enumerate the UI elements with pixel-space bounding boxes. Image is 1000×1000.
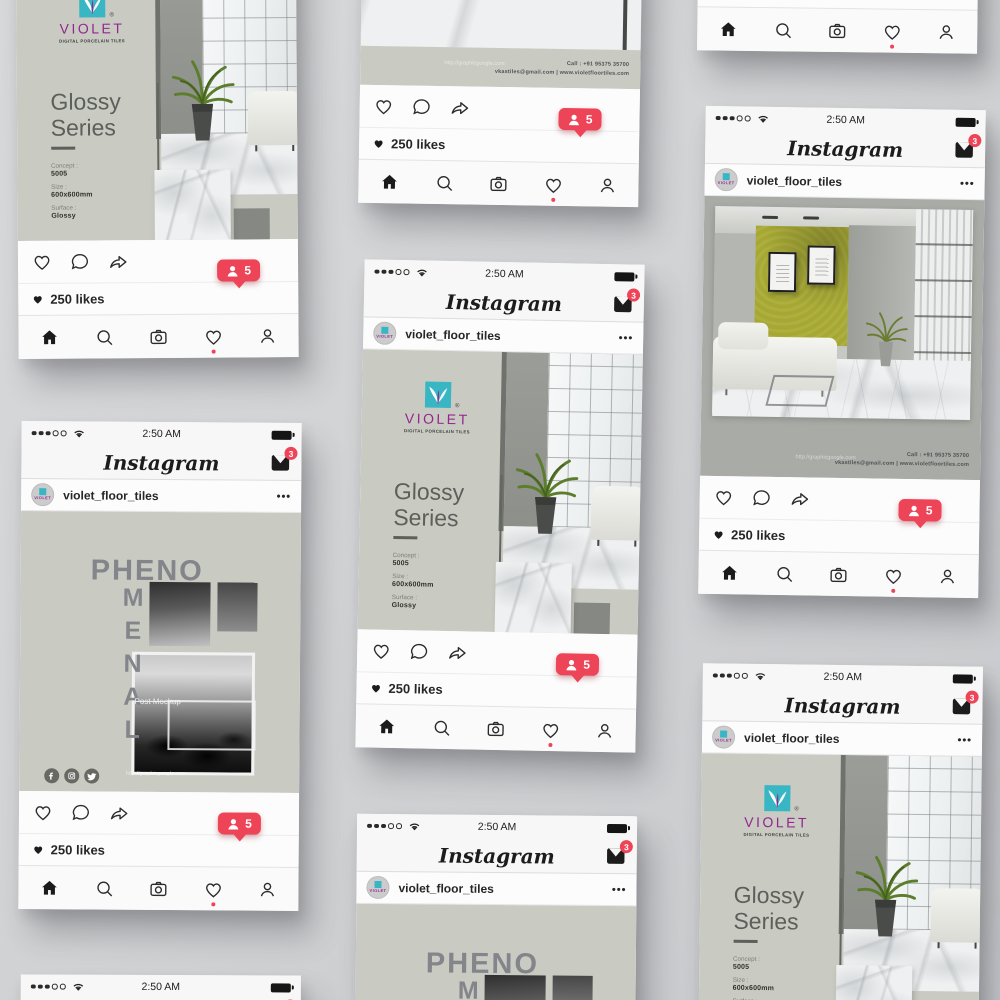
green-accent-wall <box>755 225 850 346</box>
inbox-icon[interactable]: 3 <box>605 845 627 867</box>
follower-icon <box>227 817 240 830</box>
brand-name: VIOLET <box>60 20 125 36</box>
spec-size: Size :600x600mm <box>51 183 93 198</box>
product-specs: Concept :5005 Size :600x600mm Surface :G… <box>732 955 774 1000</box>
profile-icon[interactable] <box>256 325 278 347</box>
username[interactable]: violet_floor_tiles <box>747 173 843 188</box>
status-time: 2:50 AM <box>823 671 862 683</box>
phenomenal-word-top: PHENO <box>426 948 539 982</box>
camera-icon[interactable] <box>487 172 509 194</box>
instagram-icon[interactable] <box>64 768 79 783</box>
violet-logo: ® VIOLET DIGITAL PORCELAIN TILES <box>387 381 489 435</box>
notification-count: 5 <box>583 658 590 672</box>
violet-logo-mark: ® <box>79 0 105 17</box>
activity-tab[interactable] <box>542 173 564 195</box>
likes-count[interactable]: 250 likes <box>388 681 442 697</box>
title-underline <box>733 940 757 943</box>
search-icon[interactable] <box>93 326 115 348</box>
heart-icon <box>881 20 903 42</box>
sofa <box>248 91 298 145</box>
liked-heart-icon <box>369 682 382 695</box>
follower-icon <box>226 264 239 277</box>
spec-surface: Surface :Glossy <box>392 594 434 610</box>
series-title: GlossySeries <box>733 882 804 934</box>
username[interactable]: violet_floor_tiles <box>405 327 501 343</box>
battery-icon <box>953 674 973 683</box>
liked-heart-icon <box>31 293 44 306</box>
nav-bar <box>18 313 298 359</box>
post-image-phenomenal[interactable]: PHENO MENAL Post Mockup http://graphicgo… <box>19 511 301 793</box>
comment-button-icon[interactable] <box>751 487 773 509</box>
profile-icon[interactable] <box>596 174 618 196</box>
activity-tab[interactable] <box>881 20 903 42</box>
signal-strength-icon <box>374 267 428 278</box>
contact-links: vkastiles@gmail.com | www.violetfloortil… <box>495 68 629 79</box>
action-bar: 5 <box>699 476 980 522</box>
window-blinds <box>914 209 973 369</box>
inbox-badge: 3 <box>620 840 633 853</box>
marble-photo <box>361 0 645 50</box>
profile-row: VIOLET violet_floor_tiles ••• <box>363 317 644 354</box>
signal-strength-icon <box>32 428 86 438</box>
action-bar: 5 <box>18 239 298 283</box>
username[interactable]: violet_floor_tiles <box>398 881 493 896</box>
wall-frame <box>768 252 796 292</box>
plant <box>860 296 913 377</box>
violet-logo-mark: ® <box>424 381 450 407</box>
status-time: 2:50 AM <box>485 268 524 281</box>
activity-dot <box>211 902 215 906</box>
battery-icon <box>956 117 976 126</box>
like-button-icon[interactable] <box>32 801 54 823</box>
post-footer: 5 250 likes <box>18 791 299 911</box>
battery-icon <box>271 983 291 992</box>
profile-icon[interactable] <box>256 878 278 900</box>
post-footer: 5 250 likes <box>18 239 299 359</box>
home-icon[interactable] <box>38 877 60 899</box>
registered-mark: ® <box>455 403 460 409</box>
like-button-icon[interactable] <box>370 640 392 662</box>
activity-tab[interactable] <box>202 878 224 900</box>
plant <box>506 411 586 568</box>
post-footer: 5 250 likes <box>697 0 978 54</box>
more-options-button[interactable]: ••• <box>957 734 972 746</box>
wifi-icon <box>72 982 85 992</box>
glass-table <box>765 375 834 407</box>
avatar[interactable]: VIOLET <box>715 168 738 191</box>
instagram-post-phenomenal-left: 2:50 AM Instagram 3 VIOLET violet_floor_… <box>18 421 301 911</box>
notification-badge[interactable]: 5 <box>899 499 942 522</box>
brand-name: VIOLET <box>405 410 470 427</box>
comment-button-icon[interactable] <box>69 250 91 272</box>
profile-row: VIOLET violet_floor_tiles ••• <box>356 872 636 906</box>
facebook-icon[interactable] <box>44 768 59 783</box>
nav-bar <box>355 703 636 752</box>
avatar-logo-text: VIOLET <box>715 738 732 743</box>
share-button-icon[interactable] <box>108 802 130 824</box>
post-footer: 5 250 likes <box>698 476 980 598</box>
product-specs: Concept :5005 Size :600x600mm Surface :G… <box>51 162 93 219</box>
contact-info: Call : +91 95375 35700 vkastiles@gmail.c… <box>495 58 629 79</box>
username[interactable]: violet_floor_tiles <box>744 730 840 745</box>
series-title: GlossySeries <box>393 479 464 532</box>
search-icon[interactable] <box>93 877 115 899</box>
violet-logo: ® VIOLET DIGITAL PORCELAIN TILES <box>726 784 827 837</box>
inbox-badge: 3 <box>627 288 640 301</box>
notification-count: 5 <box>245 817 252 831</box>
battery-icon <box>614 272 634 281</box>
liked-heart-icon <box>712 528 725 541</box>
camera-icon[interactable] <box>827 563 849 585</box>
instagram-post-marble-top: 2:50 AM Instagram 3 VIOLET violet_floor_… <box>358 0 646 207</box>
status-time: 2:50 AM <box>478 821 517 833</box>
comment-button-icon[interactable] <box>411 96 433 118</box>
home-icon[interactable] <box>378 171 400 193</box>
instagram-header: Instagram 3 <box>21 445 301 481</box>
avatar[interactable]: VIOLET <box>373 322 396 345</box>
follower-icon <box>908 504 921 517</box>
status-bar: 2:50 AM <box>703 663 983 690</box>
instagram-post-glossy-bottom-right: 2:50 AM Instagram 3 VIOLET violet_floor_… <box>697 663 983 1000</box>
activity-dot <box>891 588 895 592</box>
wifi-icon <box>408 821 421 831</box>
status-bar: 2:50 AM <box>21 975 301 1000</box>
post-image-glossy-series[interactable]: ® VIOLET DIGITAL PORCELAIN TILES Glos <box>698 753 981 1000</box>
comment-button-icon[interactable] <box>408 640 430 662</box>
post-image-phenomenal[interactable]: PHENO MENAL Post Mockup http://graphicgo… <box>354 904 636 1000</box>
heart-icon <box>202 878 224 900</box>
likes-count[interactable]: 250 likes <box>391 136 445 152</box>
twitter-icon[interactable] <box>84 768 99 783</box>
social-icons <box>44 768 99 783</box>
notification-count: 5 <box>244 263 251 277</box>
tile-swatch <box>155 169 231 240</box>
home-icon[interactable] <box>717 18 739 40</box>
activity-dot <box>890 44 894 48</box>
status-time: 2:50 AM <box>142 428 181 440</box>
signal-strength-icon <box>716 113 770 124</box>
watermark: http://graphicgoogle.com <box>795 454 855 461</box>
action-bar: 5 <box>357 629 638 676</box>
inbox-badge: 3 <box>968 134 981 147</box>
username[interactable]: violet_floor_tiles <box>63 488 158 503</box>
status-bar: 2:50 AM <box>357 814 637 840</box>
instagram-post-glossy-top-left: 2:50 AM Instagram 3 VIOLET violet_floor_… <box>15 0 298 359</box>
wall-frame <box>807 245 835 285</box>
instagram-header: Instagram 3 <box>357 838 637 874</box>
nav-bar <box>698 550 979 598</box>
product-specs: Concept :5005 Size :600x600mm Surface :G… <box>392 552 435 610</box>
home-icon[interactable] <box>718 562 740 584</box>
title-underline <box>51 147 75 150</box>
activity-tab[interactable] <box>882 564 904 586</box>
avatar[interactable]: VIOLET <box>712 725 735 748</box>
watermark: http://graphicgoogle.com <box>444 61 504 68</box>
interior-photo <box>160 0 298 195</box>
post-footer: 5 250 likes <box>358 85 640 207</box>
notification-badge[interactable]: 5 <box>556 653 599 676</box>
instagram-header: Instagram 3 <box>705 130 985 168</box>
search-icon[interactable] <box>430 716 452 738</box>
action-bar: 5 <box>359 85 640 131</box>
interior-room-photo <box>712 206 973 420</box>
inbox-badge: 3 <box>284 447 297 460</box>
gray-square <box>233 208 270 241</box>
camera-icon[interactable] <box>826 19 848 41</box>
avatar-logo-text: VIOLET <box>370 888 387 893</box>
nav-bar <box>358 159 639 207</box>
instagram-post-interior-right: 2:50 AM Instagram 3 VIOLET violet_floor_… <box>698 106 986 598</box>
inbox-icon[interactable]: 3 <box>950 695 972 717</box>
notification-count: 5 <box>586 112 593 126</box>
post-image-marble[interactable]: Call : +91 95375 35700 vkastiles@gmail.c… <box>360 0 644 89</box>
battery-icon <box>272 430 292 439</box>
notification-badge[interactable]: 5 <box>559 108 602 131</box>
likes-count[interactable]: 250 likes <box>51 842 105 857</box>
spec-size: Size :600x600mm <box>733 976 775 992</box>
brand-tagline: DIGITAL PORCELAIN TILES <box>59 38 125 43</box>
instagram-wordmark: Instagram <box>439 843 555 868</box>
search-icon[interactable] <box>433 171 455 193</box>
signal-strength-icon <box>367 821 421 831</box>
status-time: 2:50 AM <box>142 981 181 993</box>
collage-tile-small <box>553 976 593 1000</box>
camera-icon[interactable] <box>147 877 169 899</box>
tile-swatch <box>836 965 913 1000</box>
liked-heart-icon <box>32 843 45 856</box>
inbox-badge: 3 <box>966 691 979 704</box>
notification-count: 5 <box>926 503 933 517</box>
spec-concept: Concept :5005 <box>51 162 93 177</box>
avatar[interactable]: VIOLET <box>366 876 389 899</box>
notification-badge[interactable]: 5 <box>217 259 260 281</box>
share-button-icon[interactable] <box>446 641 468 663</box>
photo-caption: Post Mockup <box>135 697 181 706</box>
instagram-wordmark: Instagram <box>446 289 562 315</box>
activity-tab[interactable] <box>539 718 561 740</box>
brand-tagline: DIGITAL PORCELAIN TILES <box>744 832 810 838</box>
heart-icon <box>202 325 224 347</box>
share-button-icon[interactable] <box>107 250 129 272</box>
registered-mark: ® <box>109 12 113 18</box>
home-icon[interactable] <box>376 715 398 737</box>
more-options-button[interactable]: ••• <box>277 490 292 502</box>
instagram-post-sliver-bottom-left: 2:50 AM Instagram 3 VIOLET violet_floor_… <box>19 975 301 1000</box>
profile-row: VIOLET violet_floor_tiles ••• <box>702 721 982 756</box>
collage-tile-seascape <box>131 652 255 776</box>
nav-bar <box>18 865 298 911</box>
comment-button-icon[interactable] <box>70 801 92 823</box>
instagram-post-glossy-center: 2:50 AM Instagram 3 VIOLET violet_floor_… <box>355 259 644 752</box>
instagram-header: Instagram 3 <box>702 687 982 724</box>
share-button-icon[interactable] <box>449 96 471 118</box>
brand-tagline: DIGITAL PORCELAIN TILES <box>404 428 470 434</box>
instagram-header: Instagram 3 <box>364 283 645 322</box>
camera-icon[interactable] <box>147 325 169 347</box>
collage-tile-small <box>218 582 258 631</box>
signal-strength-icon <box>713 670 767 681</box>
nav-bar <box>697 6 978 53</box>
phenomenal-word-vertical: MENAL <box>122 582 144 747</box>
follower-icon <box>565 658 578 671</box>
notification-badge[interactable]: 5 <box>218 812 261 834</box>
wifi-icon <box>415 267 428 277</box>
activity-dot <box>548 742 552 746</box>
plant <box>846 814 925 970</box>
likes-row: 250 likes <box>18 281 298 315</box>
title-underline <box>393 536 417 539</box>
violet-logo: ® VIOLET DIGITAL PORCELAIN TILES <box>41 0 142 44</box>
heart-icon <box>882 564 904 586</box>
likes-row: 250 likes <box>359 127 639 163</box>
interior-photo <box>503 352 643 590</box>
instagram-wordmark: Instagram <box>784 693 900 718</box>
sofa <box>590 485 643 540</box>
spec-surface: Surface :Glossy <box>51 204 93 219</box>
likes-row: 250 likes <box>19 833 299 867</box>
likes-count[interactable]: 250 likes <box>731 527 785 543</box>
phenomenal-word-vertical: MENAL <box>456 975 478 1000</box>
wifi-icon <box>757 114 770 124</box>
profile-icon[interactable] <box>936 565 958 587</box>
home-icon[interactable] <box>38 326 60 348</box>
series-title: GlossySeries <box>50 89 121 141</box>
instagram-wordmark: Instagram <box>787 136 903 162</box>
gray-square <box>573 603 610 635</box>
spec-concept: Concept :5005 <box>733 955 775 971</box>
heart-icon <box>539 718 561 740</box>
activity-dot <box>211 349 215 353</box>
phenomenal-word-top: PHENO <box>91 555 204 589</box>
search-icon[interactable] <box>772 19 794 41</box>
profile-icon[interactable] <box>935 21 957 43</box>
interior-photo <box>843 755 982 992</box>
spec-concept: Concept :5005 <box>392 552 434 568</box>
collage-inner-frame <box>167 700 255 751</box>
avatar-logo-text: VIOLET <box>376 334 393 340</box>
heart-icon <box>542 173 564 195</box>
activity-tab[interactable] <box>202 325 224 347</box>
inbox-icon[interactable]: 3 <box>953 139 975 161</box>
watermark: http://graphicgoogle.com <box>126 770 186 776</box>
more-options-button[interactable]: ••• <box>619 332 634 344</box>
inbox-icon[interactable]: 3 <box>269 452 291 474</box>
post-image-interior[interactable]: Call : +91 95375 35700 vkastiles@gmail.c… <box>700 196 984 480</box>
plant <box>163 18 241 174</box>
avatar-logo-text: VIOLET <box>34 496 51 501</box>
inbox-icon[interactable]: 3 <box>612 293 634 315</box>
spec-size: Size :600x600mm <box>392 573 434 589</box>
likes-row: 250 likes <box>356 671 637 708</box>
status-time: 2:50 AM <box>826 114 865 127</box>
instagram-post-cut-top-right: 2:50 AM Instagram 3 VIOLET violet_floor_… <box>697 0 983 54</box>
brand-name: VIOLET <box>744 814 809 831</box>
avatar-logo-text: VIOLET <box>718 180 735 185</box>
violet-logo-mark: ® <box>764 785 790 811</box>
like-button-icon[interactable] <box>31 251 53 273</box>
wifi-icon <box>754 671 767 681</box>
more-options-button[interactable]: ••• <box>612 884 627 896</box>
profile-row: VIOLET violet_floor_tiles ••• <box>704 164 984 200</box>
like-button-icon[interactable] <box>713 486 735 508</box>
avatar-logo-square <box>39 489 46 496</box>
post-image-glossy-series[interactable]: ® VIOLET DIGITAL PORCELAIN TILES Glos <box>358 349 643 634</box>
like-button-icon[interactable] <box>373 95 395 117</box>
post-image-glossy-series[interactable]: ® VIOLET DIGITAL PORCELAIN TILES Glos <box>16 0 298 241</box>
search-icon[interactable] <box>773 562 795 584</box>
likes-count[interactable]: 250 likes <box>50 291 104 306</box>
wifi-icon <box>73 428 86 438</box>
liked-heart-icon <box>372 137 385 150</box>
camera-icon[interactable] <box>485 717 507 739</box>
instagram-wordmark: Instagram <box>103 450 219 475</box>
status-bar: 2:50 AM <box>22 421 302 447</box>
follower-icon <box>568 113 581 126</box>
share-button-icon[interactable] <box>789 487 811 509</box>
registered-mark: ® <box>794 806 798 812</box>
post-footer: 5 250 likes <box>355 629 637 752</box>
avatar-logo-square <box>374 881 381 888</box>
battery-icon <box>607 823 627 832</box>
likes-row: 250 likes <box>699 518 979 554</box>
avatar[interactable]: VIOLET <box>31 483 54 506</box>
more-options-button[interactable]: ••• <box>960 177 975 189</box>
profile-row: VIOLET violet_floor_tiles ••• <box>21 479 301 513</box>
signal-strength-icon <box>31 982 85 992</box>
instagram-post-phenomenal-bottom: 2:50 AM Instagram 3 VIOLET violet_floor_… <box>353 814 637 1000</box>
action-bar: 5 <box>19 791 299 835</box>
collage-tile-sky <box>149 582 211 647</box>
tile-swatch <box>495 562 572 635</box>
activity-dot <box>551 197 555 201</box>
sofa <box>931 888 982 943</box>
profile-icon[interactable] <box>593 719 615 741</box>
avatar-logo-square <box>720 731 727 738</box>
